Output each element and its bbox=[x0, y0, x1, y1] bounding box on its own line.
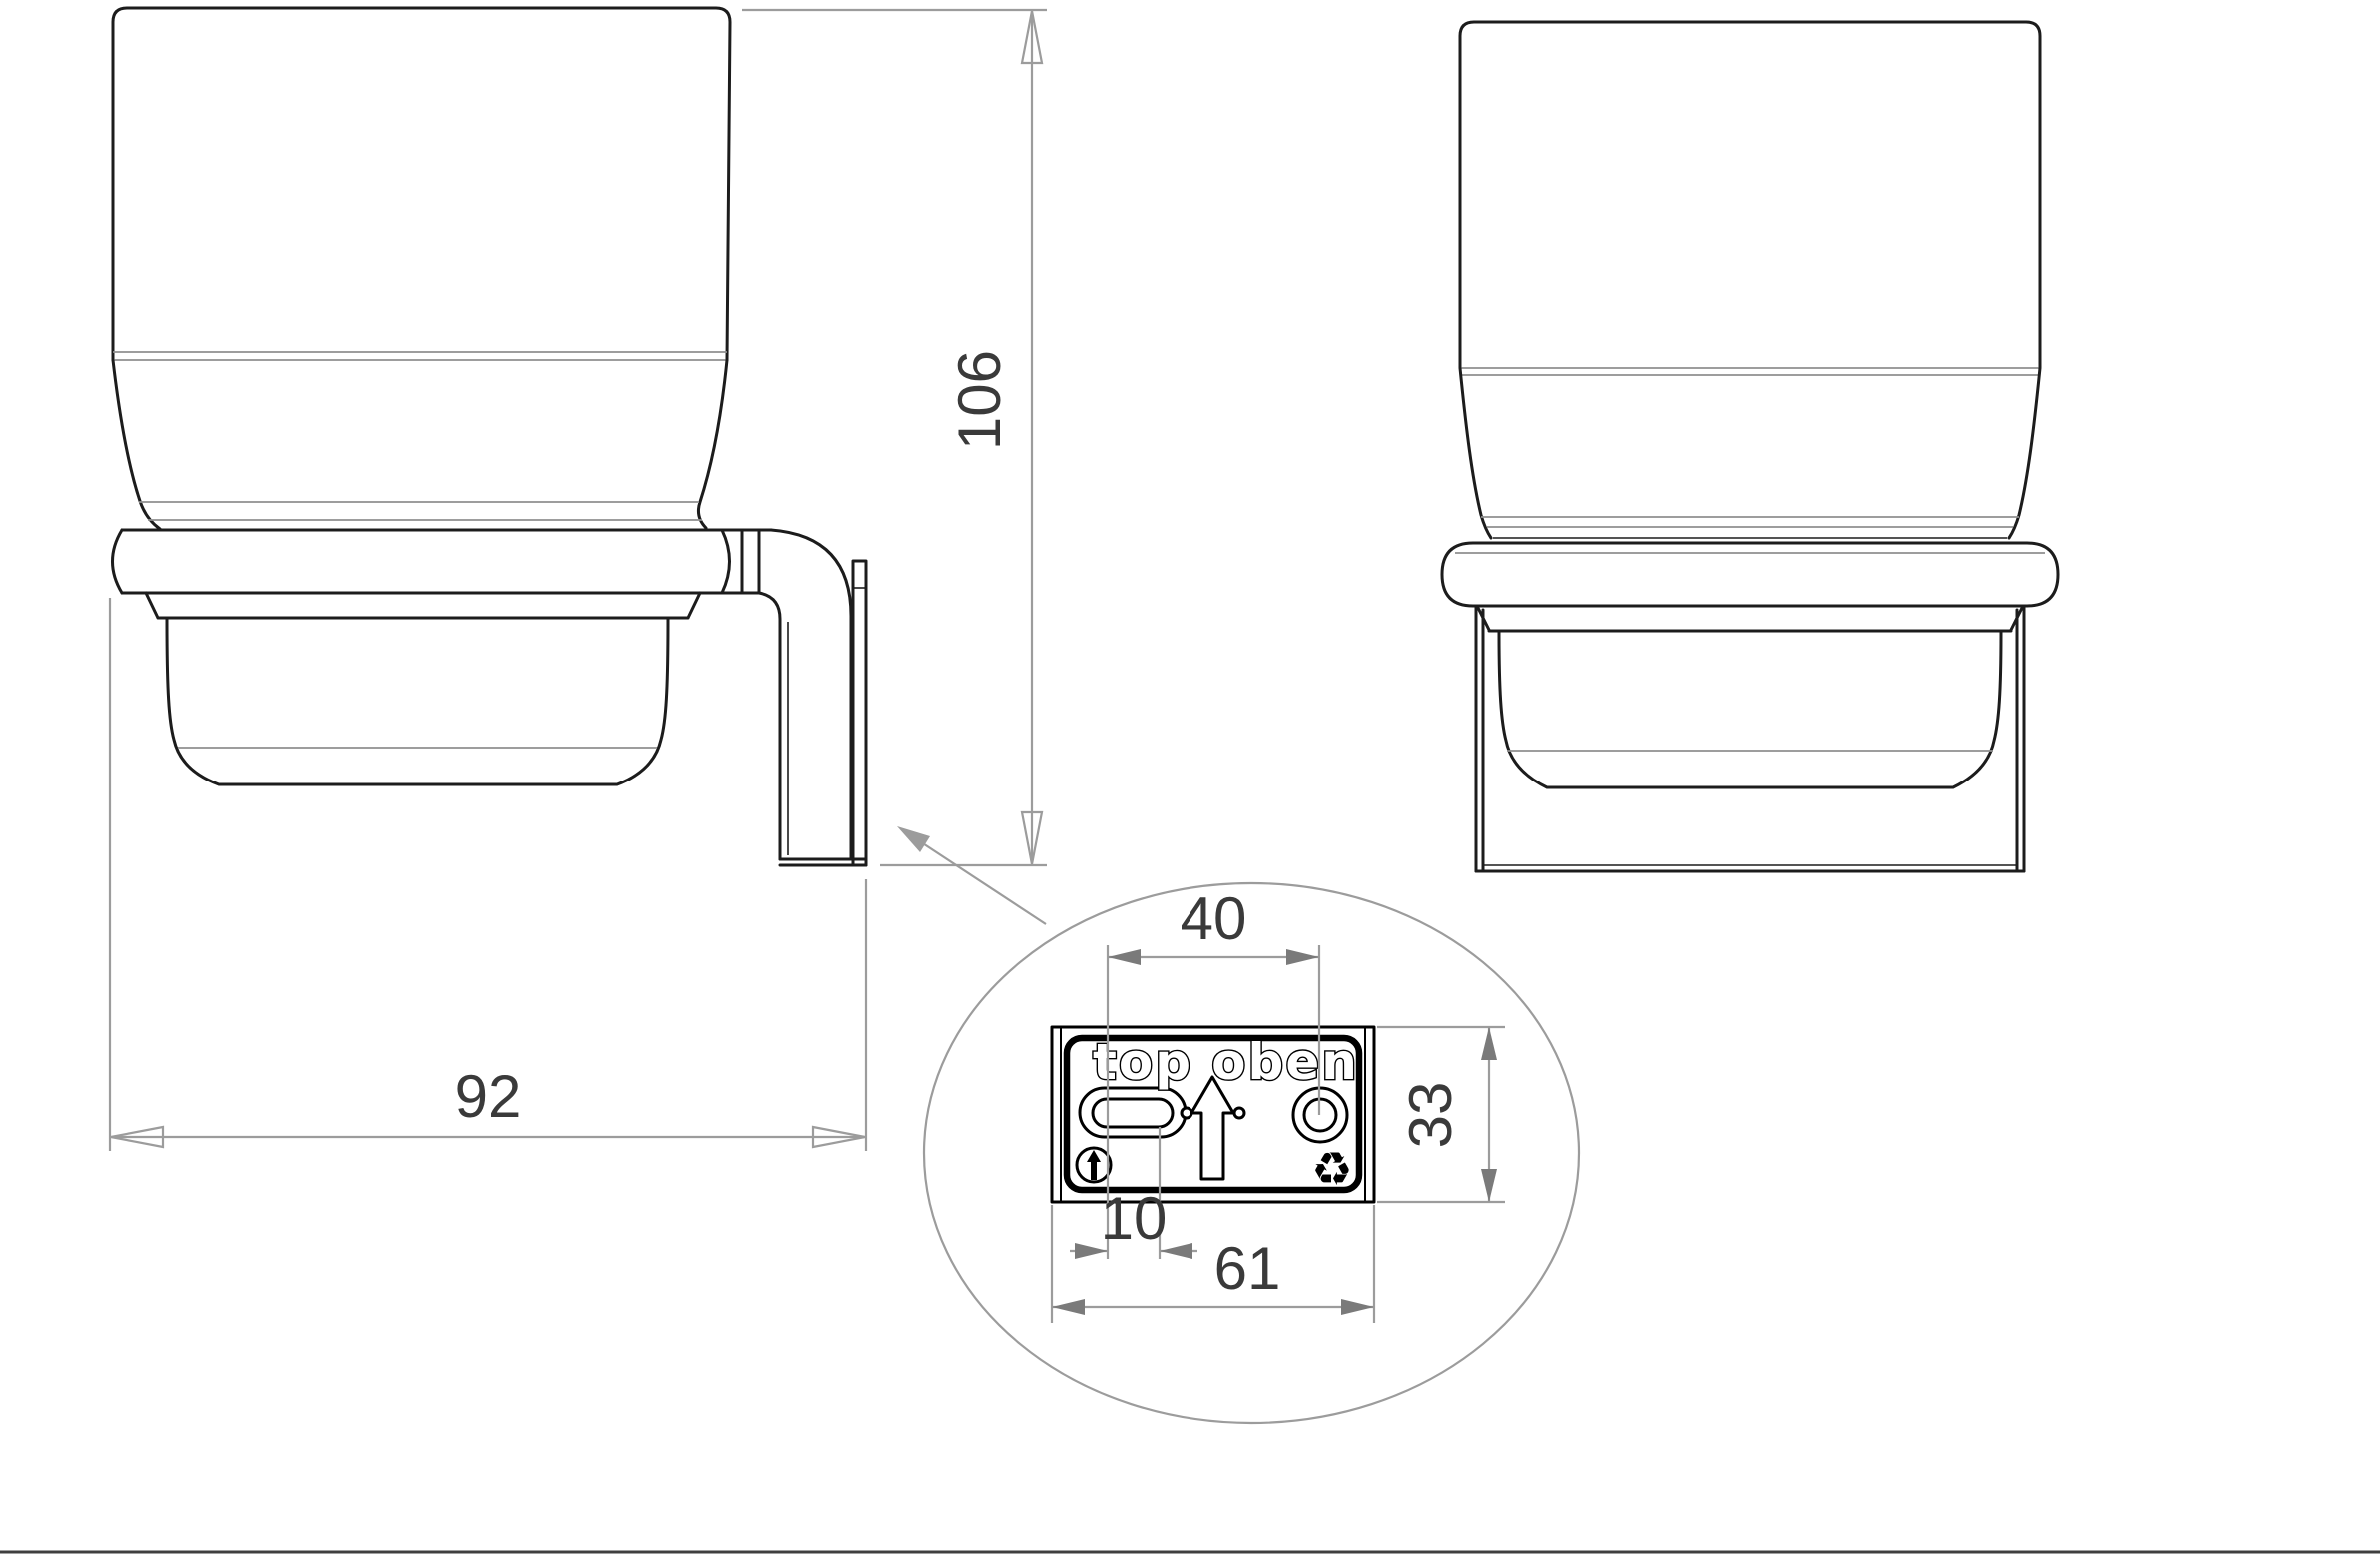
dimension-value-height: 106 bbox=[946, 350, 1013, 450]
side-view bbox=[113, 8, 867, 865]
tumbler-holder-technical-drawing: 106 92 bbox=[0, 0, 2380, 1562]
cup-shoulder bbox=[146, 593, 700, 618]
glass-body-side bbox=[113, 8, 730, 360]
housing-right-edge bbox=[2017, 606, 2024, 871]
cup-shoulder bbox=[1478, 608, 2022, 631]
wall-plate-side bbox=[853, 561, 866, 865]
glass-bottom-side bbox=[167, 619, 668, 784]
dimension-depth: 92 bbox=[110, 598, 866, 1151]
dimension-arrow-right bbox=[1341, 1299, 1374, 1315]
dimension-arrow-down bbox=[1481, 1169, 1497, 1202]
holder-ring-rear-arc bbox=[722, 530, 730, 593]
detail-leader-line bbox=[906, 832, 1046, 924]
dimension-value-slot-offset: 10 bbox=[1101, 1185, 1168, 1252]
glass-bottom-front bbox=[1499, 632, 2001, 787]
recycling-icon: ♻ bbox=[1311, 1142, 1352, 1196]
dimension-value-plate-width: 61 bbox=[1214, 1235, 1281, 1302]
dimension-value-hole-spacing: 40 bbox=[1181, 885, 1247, 952]
detail-view: ♻ top oben 40 33 10 bbox=[897, 826, 1579, 1423]
dimension-arrow-left bbox=[1052, 1299, 1085, 1315]
dimension-arrow-left bbox=[1108, 949, 1141, 965]
housing-left-edge bbox=[1476, 606, 1483, 871]
front-view bbox=[1442, 22, 2058, 871]
glass-taper-left bbox=[1460, 368, 1491, 538]
drawing-sheet: 106 92 bbox=[0, 0, 2380, 1562]
detail-leader-arrow bbox=[897, 826, 930, 852]
ring-arm-joint bbox=[742, 530, 759, 593]
bracket-arm-inner bbox=[759, 593, 780, 859]
holder-ring-front-cap bbox=[113, 530, 123, 593]
mounting-plate: ♻ top oben bbox=[1052, 1027, 1374, 1202]
dimension-value-plate-height: 33 bbox=[1397, 1082, 1464, 1149]
plate-label-oben: oben bbox=[1211, 1033, 1359, 1091]
bracket-arm-outer bbox=[771, 530, 851, 859]
glass-taper-right bbox=[698, 360, 727, 528]
glass-taper-right bbox=[2009, 368, 2040, 538]
dimension-plate-height: 33 bbox=[1377, 1027, 1505, 1202]
pivot-dot-right bbox=[1234, 1108, 1244, 1118]
dimension-arrow-up bbox=[1481, 1027, 1497, 1060]
glass-body-front bbox=[1460, 22, 2040, 367]
mounting-slot-outer bbox=[1080, 1088, 1186, 1137]
dimension-arrow-right bbox=[1286, 949, 1319, 965]
dimension-value-depth: 92 bbox=[455, 1063, 522, 1130]
glass-taper-left bbox=[113, 360, 160, 529]
